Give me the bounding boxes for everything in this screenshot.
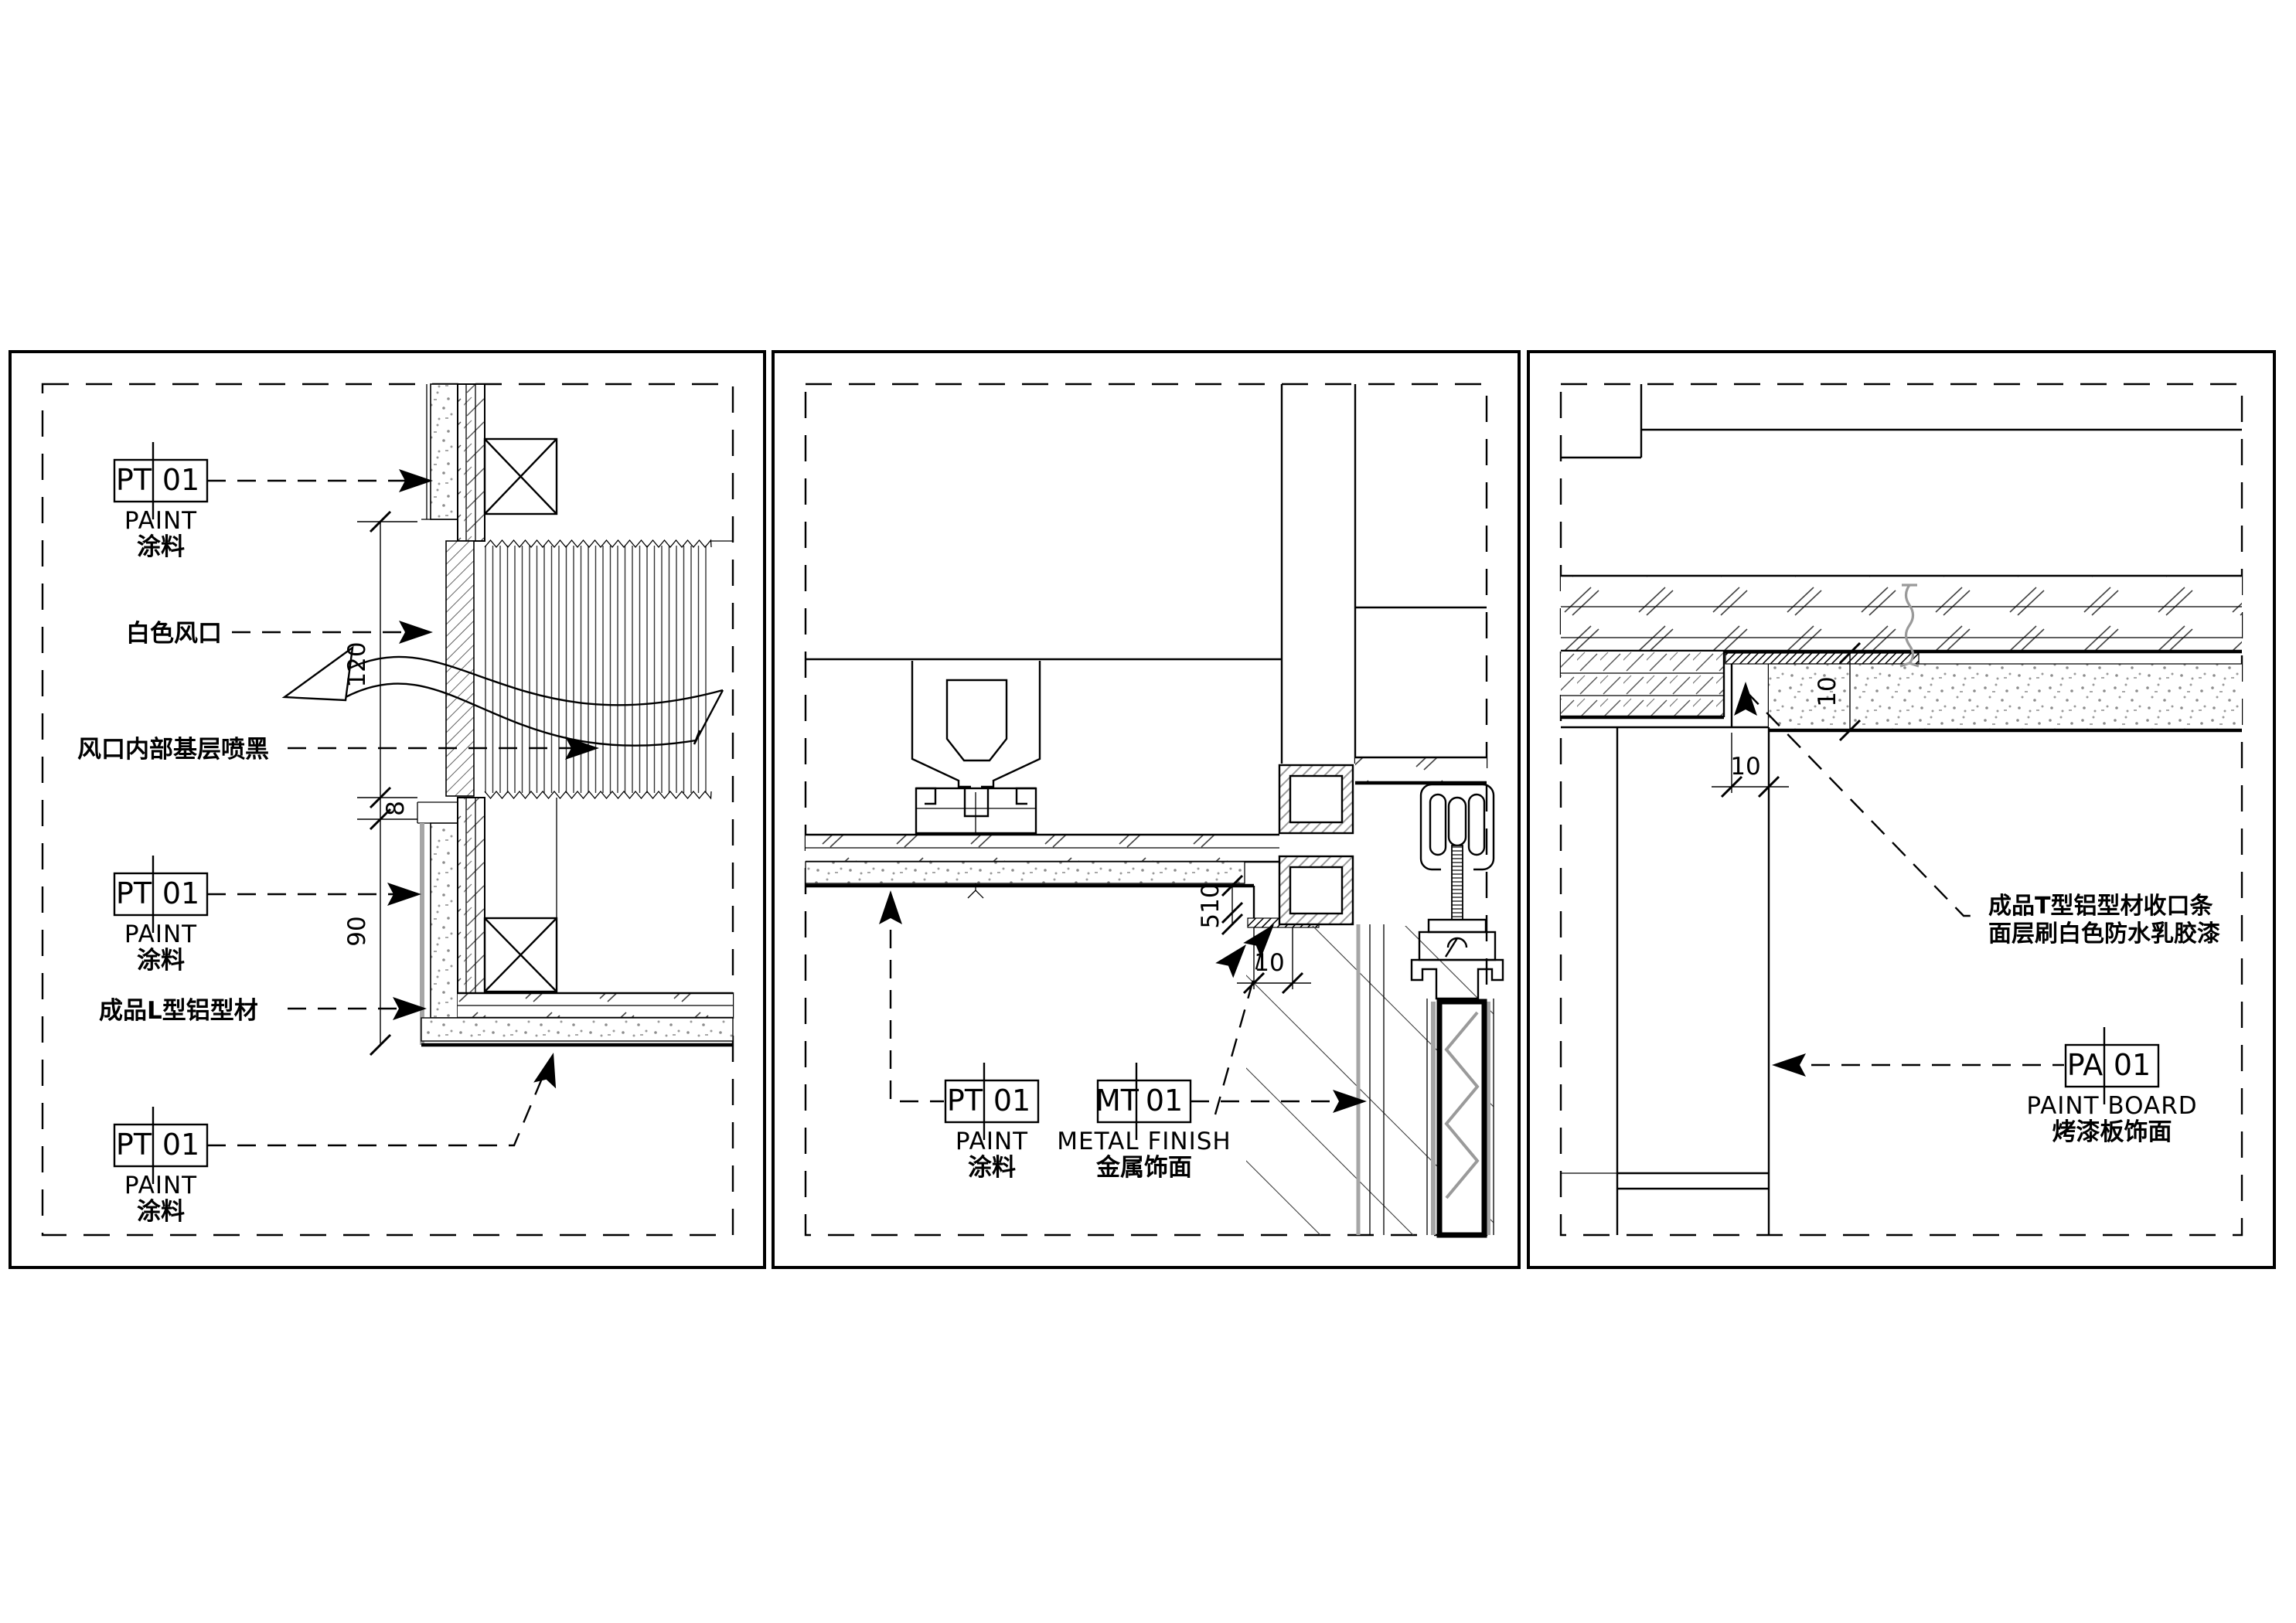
leader-arrow-icon bbox=[1333, 1090, 1367, 1113]
tag-name-cn: 涂料 bbox=[968, 1154, 1016, 1182]
dim-vent-height: 120 bbox=[343, 641, 371, 687]
ceiling-assembly-middle bbox=[806, 835, 1319, 927]
label-text: 风口内部基层喷黑 bbox=[77, 736, 269, 764]
dim-step: 8 bbox=[382, 801, 410, 816]
blocking-x-lower bbox=[485, 918, 557, 992]
tag-number: 01 bbox=[162, 463, 199, 497]
sliding-door-track bbox=[1355, 757, 1503, 1235]
leader-arrow-icon bbox=[533, 1050, 564, 1088]
leader-arrow-icon bbox=[399, 621, 433, 644]
leader-line bbox=[207, 1062, 549, 1145]
dimension-chain-left: 120 8 90 bbox=[343, 512, 417, 1055]
tag-code: MT bbox=[1095, 1084, 1139, 1118]
air-vent bbox=[446, 540, 733, 798]
note-line-1: 成品T型铝型材收口条 bbox=[1988, 893, 2213, 920]
tag-code: PT bbox=[116, 1128, 152, 1162]
tag-code: PA bbox=[2067, 1048, 2103, 1082]
label-text: 成品L型铝型材 bbox=[99, 997, 258, 1025]
tag-code: PT bbox=[116, 876, 152, 910]
tag-name-cn: 涂料 bbox=[137, 533, 185, 561]
dimension-reveal-width: 10 bbox=[1712, 733, 1789, 797]
tag-number: 01 bbox=[2114, 1048, 2151, 1082]
dim-lower: 90 bbox=[343, 916, 371, 946]
note-line-2: 面层刷白色防水乳胶漆 bbox=[1988, 920, 2220, 948]
tag-name-cn: 涂料 bbox=[137, 947, 185, 975]
finish-tag-paint-mid: PT 01 PAINT 涂料 bbox=[114, 856, 421, 975]
tag-name-cn: 金属饰面 bbox=[1095, 1154, 1192, 1182]
dim-reveal: 10 bbox=[1730, 753, 1760, 781]
wall-upper-section bbox=[421, 384, 557, 541]
detail-panel-right: 10 10 成品T型铝型材收口条 面层刷白色防水乳胶漆 bbox=[1528, 352, 2274, 1267]
tag-name-en: PAINT bbox=[124, 507, 197, 535]
finish-tag-paint-board: PA 01 PAINT BOARD 烤漆板饰面 bbox=[1772, 1027, 2198, 1146]
wall-paint-board bbox=[1561, 727, 1769, 1235]
finish-tag-paint-bottom: PT 01 PAINT 涂料 bbox=[114, 1050, 564, 1226]
structure-step bbox=[1561, 384, 2242, 458]
tag-number: 01 bbox=[993, 1084, 1030, 1118]
leader-line bbox=[891, 900, 944, 1101]
steel-tube-wall bbox=[1279, 765, 1353, 924]
ceiling-assembly-left bbox=[421, 993, 733, 1045]
threaded-rod bbox=[1452, 846, 1463, 920]
tag-number: 01 bbox=[1146, 1084, 1183, 1118]
dim-board-thk: 10 bbox=[1814, 676, 1841, 706]
t-bar-flange bbox=[1725, 653, 1919, 664]
plenum-structure bbox=[806, 384, 1487, 764]
door-hanger-bracket bbox=[1412, 960, 1503, 999]
ceiling-detail-sheet: 120 8 90 PT 01 PAINT 涂料 白色风口 风口内部基层喷黑 bbox=[0, 0, 2296, 1623]
tag-name-en: PAINT bbox=[124, 1172, 197, 1199]
tag-name-cn: 涂料 bbox=[137, 1198, 185, 1226]
blocking-x-upper bbox=[485, 439, 557, 514]
tag-name-en: PAINT bbox=[124, 920, 197, 948]
finish-tag-paint-top: PT 01 PAINT 涂料 bbox=[114, 442, 433, 561]
tag-name-en: PAINT bbox=[956, 1128, 1028, 1155]
tag-number: 01 bbox=[162, 1128, 199, 1162]
label-text: 白色风口 bbox=[126, 620, 222, 648]
finish-tag-paint: PT 01 PAINT 涂料 bbox=[879, 890, 1038, 1182]
detail-panel-middle: 510 10 PT 01 PAINT 涂料 MT 01 METAL FINISH bbox=[773, 352, 1708, 1453]
tag-name-en: METAL FINISH bbox=[1057, 1128, 1231, 1155]
label-white-vent: 白色风口 bbox=[126, 620, 433, 648]
tag-number: 01 bbox=[162, 876, 199, 910]
dim-edge: 510 bbox=[1197, 883, 1225, 928]
tag-code: PT bbox=[947, 1084, 983, 1118]
label-l-aluminium-profile: 成品L型铝型材 bbox=[99, 997, 427, 1025]
tag-name-cn: 烤漆板饰面 bbox=[2052, 1118, 2172, 1146]
tag-code: PT bbox=[116, 463, 152, 497]
sliding-door-panel bbox=[1427, 999, 1494, 1235]
detail-panel-left: 120 8 90 PT 01 PAINT 涂料 白色风口 风口内部基层喷黑 bbox=[10, 352, 765, 1267]
tag-name-en: PAINT BOARD bbox=[2026, 1092, 2197, 1120]
